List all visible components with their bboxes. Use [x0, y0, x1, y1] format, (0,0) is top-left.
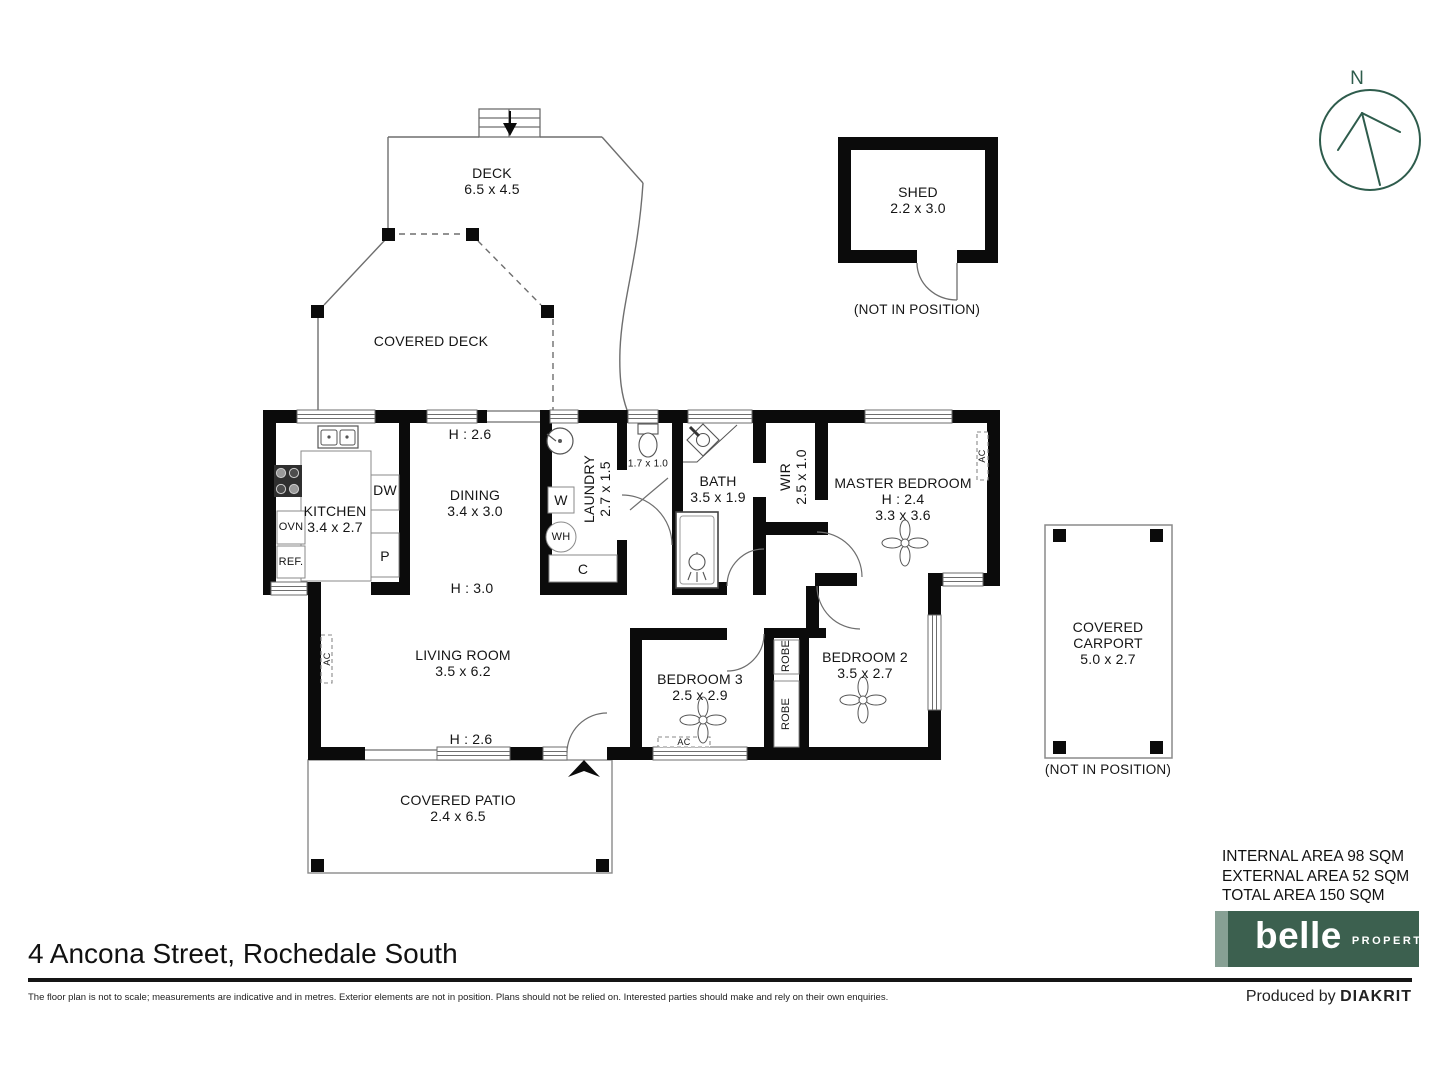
toilet-icon: [638, 424, 658, 457]
kitchen-label: KITCHEN 3.4 x 2.7: [304, 503, 367, 535]
robe-label: ROBE: [780, 640, 792, 672]
room-name: LAUNDRY: [581, 455, 597, 523]
room-name: KITCHEN: [304, 503, 367, 519]
room-dim: 2.7 x 1.5: [597, 455, 613, 523]
compass-north-label: N: [1350, 68, 1364, 90]
carport-not-in-position: (NOT IN POSITION): [1045, 762, 1171, 778]
external-area: EXTERNAL AREA 52 SQM: [1222, 867, 1409, 887]
stove-icon: [274, 465, 302, 497]
producer-name: DIAKRIT: [1340, 988, 1412, 1005]
pantry-label: P: [380, 548, 390, 564]
room-dim: 2.5 x 2.9: [657, 687, 743, 703]
vanity-icon: [683, 424, 737, 462]
room-name: BEDROOM 3: [657, 671, 743, 687]
footer-divider: [28, 978, 1412, 982]
carport-label: COVERED CARPORT 5.0 x 2.7: [1073, 619, 1144, 667]
disclaimer-text: The floor plan is not to scale; measurem…: [28, 992, 888, 1003]
deck-posts: [311, 228, 554, 318]
room-name: BEDROOM 2: [822, 649, 908, 665]
bedroom2-label: BEDROOM 2 3.5 x 2.7: [822, 649, 908, 681]
room-dim: 3.3 x 3.6: [834, 507, 971, 523]
bedroom3-label: BEDROOM 3 2.5 x 2.9: [657, 671, 743, 703]
belle-property-logo: belle PROPERTY: [1215, 911, 1419, 967]
fridge-label: REF.: [279, 556, 304, 568]
brand-tagline: PROPERTY: [1352, 935, 1433, 947]
washer-label: W: [554, 492, 567, 508]
ac-label: AC: [677, 737, 690, 747]
room-name: BATH: [690, 473, 746, 489]
wc-dim-label: 1.7 x 1.0: [628, 459, 668, 470]
property-address: 4 Ancona Street, Rochedale South: [28, 938, 458, 970]
room-dim: 5.0 x 2.7: [1073, 651, 1144, 667]
room-height: H : 2.4: [834, 491, 971, 507]
shed-structure: [838, 137, 998, 300]
internal-area: INTERNAL AREA 98 SQM: [1222, 847, 1409, 867]
floor-plan-page: DECK 6.5 x 4.5 COVERED DECK SHED 2.2 x 3…: [0, 0, 1440, 1080]
entry-arrow-icon: [568, 760, 600, 777]
ceiling-fan-icon: [840, 677, 886, 723]
room-name: WIR: [777, 449, 793, 505]
room-dim: 3.5 x 6.2: [415, 663, 511, 679]
room-dim: 3.5 x 2.7: [822, 665, 908, 681]
total-area: TOTAL AREA 150 SQM: [1222, 886, 1409, 906]
oven-label: OVN: [279, 521, 303, 533]
room-dim: 6.5 x 4.5: [464, 181, 520, 197]
room-name: MASTER BEDROOM: [834, 475, 971, 491]
ceiling-fan-icon: [882, 520, 928, 566]
room-dim: 2.5 x 1.0: [793, 449, 809, 505]
brand-name: belle: [1255, 917, 1342, 962]
ceiling-height-upper: H : 2.6: [449, 426, 492, 442]
ac-label: AC: [977, 449, 987, 462]
water-heater-label: WH: [552, 531, 571, 543]
wir-label: WIR 2.5 x 1.0: [777, 449, 809, 505]
dishwasher-label: DW: [373, 482, 397, 498]
logo-accent-strip: [1215, 911, 1228, 967]
master-bedroom-label: MASTER BEDROOM H : 2.4 3.3 x 3.6: [834, 475, 971, 523]
bath-label: BATH 3.5 x 1.9: [690, 473, 746, 505]
room-name: COVERED DECK: [374, 333, 488, 349]
cupboard-label: C: [578, 561, 588, 577]
compass-icon: [1320, 90, 1420, 190]
room-name: SHED: [890, 184, 946, 200]
deck-label: DECK 6.5 x 4.5: [464, 165, 520, 197]
robe-label: ROBE: [780, 698, 792, 730]
room-dim: 2.2 x 3.0: [890, 200, 946, 216]
ceiling-height-living: H : 3.0: [451, 580, 494, 596]
room-dim: 2.4 x 6.5: [400, 808, 516, 824]
shed-label: SHED 2.2 x 3.0: [890, 184, 946, 216]
room-name: LIVING ROOM: [415, 647, 511, 663]
covered-patio-label: COVERED PATIO 2.4 x 6.5: [400, 792, 516, 824]
ac-label: AC: [322, 652, 332, 665]
covered-deck-label: COVERED DECK: [374, 333, 488, 349]
room-name: DINING: [447, 487, 503, 503]
dining-label: DINING 3.4 x 3.0: [447, 487, 503, 519]
room-name: COVERED PATIO: [400, 792, 516, 808]
covered-deck-dashed-boundary: [399, 234, 553, 410]
room-dim: 3.4 x 3.0: [447, 503, 503, 519]
living-room-label: LIVING ROOM 3.5 x 6.2: [415, 647, 511, 679]
shower-icon: [676, 512, 718, 588]
room-name: CARPORT: [1073, 635, 1144, 651]
room-name: DECK: [464, 165, 520, 181]
stairs-icon: [479, 109, 540, 137]
produced-by: Produced by DIAKRIT: [1246, 988, 1412, 1006]
shed-not-in-position: (NOT IN POSITION): [854, 302, 980, 318]
room-name: COVERED: [1073, 619, 1144, 635]
laundry-tub-icon: [547, 428, 573, 454]
kitchen-sink-icon: [318, 426, 358, 448]
laundry-label: LAUNDRY 2.7 x 1.5: [581, 455, 613, 523]
ceiling-height-lower: H : 2.6: [450, 731, 493, 747]
area-summary: INTERNAL AREA 98 SQM EXTERNAL AREA 52 SQ…: [1222, 847, 1409, 906]
produced-by-text: Produced by: [1246, 988, 1336, 1005]
room-dim: 3.5 x 1.9: [690, 489, 746, 505]
room-dim: 3.4 x 2.7: [304, 519, 367, 535]
